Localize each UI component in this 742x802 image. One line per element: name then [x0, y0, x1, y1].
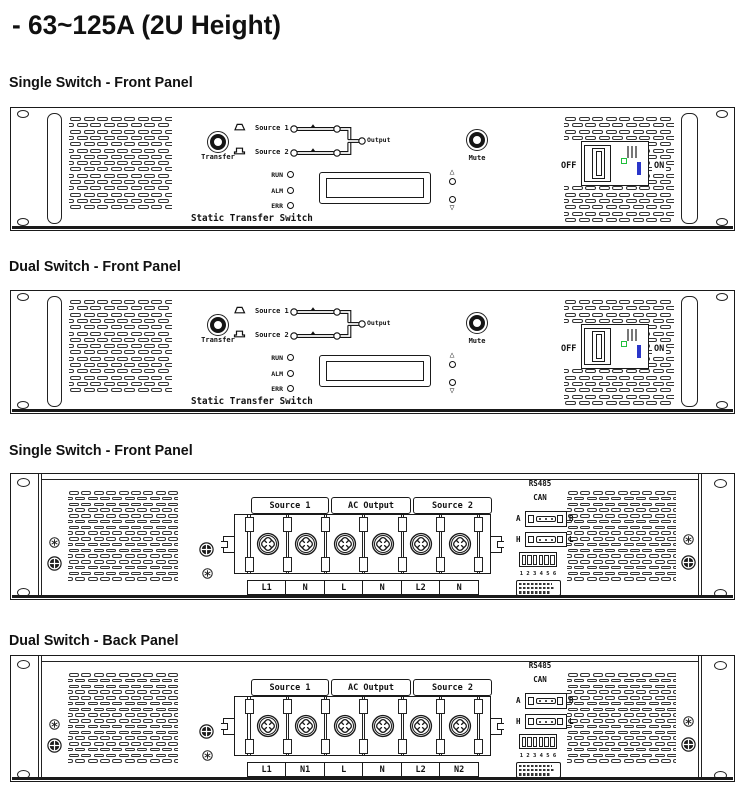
vent-brick: [165, 300, 173, 304]
vent-brick: [568, 685, 578, 689]
vent-brick: [117, 199, 128, 203]
vent-brick: [81, 514, 91, 518]
vent-brick: [649, 497, 659, 501]
vent-brick: [125, 713, 135, 717]
vent-brick: [100, 577, 110, 581]
vent-brick: [125, 679, 135, 683]
vent-brick: [606, 218, 617, 222]
vent-brick: [567, 679, 572, 683]
vent-brick: [653, 186, 664, 190]
vent-brick: [666, 369, 674, 373]
screw-icon: [202, 568, 213, 579]
vent-brick: [599, 531, 609, 535]
vent-brick: [69, 560, 79, 564]
vent-brick: [81, 708, 91, 712]
vent-brick: [100, 566, 110, 570]
terminal-label: L1: [247, 580, 287, 595]
dip-cell: [539, 555, 544, 565]
vent-brick: [653, 174, 664, 178]
vent-brick: [84, 300, 95, 304]
vent-brick: [77, 382, 88, 386]
vent-brick: [619, 376, 630, 380]
vent-brick: [143, 503, 153, 507]
vent-brick: [151, 205, 162, 209]
vent-brick: [97, 338, 108, 342]
vent-brick: [156, 742, 166, 746]
vent-brick: [68, 725, 73, 729]
vent-brick: [70, 142, 81, 146]
vent-brick: [97, 142, 108, 146]
vent-brick: [605, 560, 615, 564]
vent-brick: [90, 357, 101, 361]
vent-brick: [592, 117, 603, 121]
terminal-clamp: [436, 739, 445, 754]
vent-brick: [564, 306, 569, 310]
vent-brick: [587, 577, 597, 581]
vent-brick: [100, 497, 110, 501]
vent-brick: [655, 491, 665, 495]
vent-brick: [574, 531, 584, 535]
vent-brick: [605, 491, 615, 495]
vent-brick: [112, 736, 122, 740]
vent-brick: [111, 155, 122, 159]
terminal-clamp: [359, 517, 368, 532]
vent-brick: [144, 199, 155, 203]
ventilation-grille-right: [567, 672, 676, 766]
vent-brick: [68, 531, 73, 535]
breaker-green-indicator: [621, 341, 627, 347]
vent-brick: [653, 123, 664, 127]
vent-brick: [125, 725, 135, 729]
vent-brick: [655, 696, 665, 700]
vent-brick: [605, 742, 615, 746]
vent-brick: [606, 300, 617, 304]
vent-brick: [653, 332, 664, 336]
vent-brick: [70, 155, 81, 159]
vent-brick: [75, 702, 85, 706]
vent-brick: [580, 742, 590, 746]
vent-brick: [587, 748, 597, 752]
vent-brick: [138, 300, 149, 304]
vent-brick: [655, 742, 665, 746]
vent-brick: [150, 748, 160, 752]
vent-brick: [158, 344, 169, 348]
vent-brick: [151, 180, 162, 184]
vent-brick: [165, 180, 173, 184]
lcd-display-inner: [326, 178, 424, 198]
vent-brick: [618, 514, 628, 518]
port-h-label: H: [516, 718, 521, 726]
vent-brick: [156, 696, 166, 700]
vent-brick: [667, 731, 676, 735]
dip-numbers-label: 1 2 3 4 5 6: [516, 754, 560, 760]
vent-brick: [599, 497, 609, 501]
vent-brick: [106, 537, 116, 541]
vent-brick: [174, 736, 178, 740]
vent-brick: [639, 306, 650, 310]
vent-brick: [168, 526, 178, 530]
terminal-screw-icon: [448, 714, 472, 738]
vent-brick: [630, 560, 640, 564]
led-run-label: RUN: [259, 172, 283, 179]
terminal-clamp: [245, 517, 254, 532]
vent-brick: [137, 543, 147, 547]
vent-brick: [666, 186, 674, 190]
output-label: Output: [367, 320, 390, 327]
vent-brick: [618, 754, 628, 758]
vent-brick: [667, 754, 676, 758]
vent-brick: [69, 549, 79, 553]
vent-brick: [611, 508, 621, 512]
vent-brick: [138, 363, 149, 367]
vent-brick: [624, 748, 634, 752]
vent-brick: [144, 382, 155, 386]
vent-brick: [70, 350, 81, 354]
vent-brick: [168, 503, 178, 507]
vent-brick: [655, 754, 665, 758]
vent-brick: [131, 186, 142, 190]
scroll-down-button: [449, 379, 456, 386]
vent-brick: [564, 136, 569, 140]
down-arrow-icon: ▽: [445, 204, 459, 212]
vent-brick: [605, 685, 615, 689]
vent-brick: [593, 731, 603, 735]
vent-brick: [618, 708, 628, 712]
vent-brick: [660, 193, 671, 197]
vent-brick: [661, 748, 671, 752]
vent-brick: [162, 508, 172, 512]
vent-brick: [592, 300, 603, 304]
vent-brick: [599, 690, 609, 694]
vent-brick: [599, 759, 609, 763]
terminal-header-ac-output: AC Output: [331, 497, 411, 514]
vent-brick: [633, 117, 644, 121]
vent-brick: [592, 130, 603, 134]
vent-brick: [666, 136, 674, 140]
vent-brick: [70, 313, 81, 317]
vent-brick: [593, 537, 603, 541]
vent-brick: [568, 491, 578, 495]
vent-brick: [84, 155, 95, 159]
vent-brick: [599, 382, 610, 386]
vent-brick: [143, 526, 153, 530]
vent-brick: [593, 673, 603, 677]
vent-brick: [579, 130, 590, 134]
vent-brick: [119, 526, 129, 530]
vent-brick: [68, 508, 73, 512]
vent-brick: [655, 719, 665, 723]
breaker-green-indicator: [621, 158, 627, 164]
vent-brick: [143, 537, 153, 541]
vent-brick: [69, 673, 79, 677]
vent-brick: [158, 161, 169, 165]
vent-brick: [162, 748, 172, 752]
vent-brick: [81, 696, 91, 700]
vent-brick: [90, 344, 101, 348]
vent-brick: [112, 497, 122, 501]
vent-brick: [673, 566, 676, 570]
vent-brick: [639, 369, 650, 373]
vent-brick: [633, 313, 644, 317]
vent-brick: [144, 123, 155, 127]
vent-brick: [619, 205, 630, 209]
vent-brick: [165, 205, 173, 209]
vent-brick: [649, 725, 659, 729]
vent-brick: [97, 363, 108, 367]
vent-brick: [572, 123, 583, 127]
vent-brick: [151, 388, 162, 392]
vent-brick: [68, 713, 73, 717]
vent-brick: [100, 679, 110, 683]
vent-brick: [636, 759, 646, 763]
vent-brick: [630, 708, 640, 712]
vent-brick: [144, 174, 155, 178]
vent-brick: [592, 376, 603, 380]
vent-brick: [666, 344, 674, 348]
vent-brick: [94, 708, 104, 712]
vent-brick: [564, 123, 569, 127]
vent-brick: [131, 673, 141, 677]
device-label: Static Transfer Switch: [191, 214, 305, 224]
vent-brick: [90, 306, 101, 310]
vent-brick: [68, 577, 73, 581]
vent-brick: [653, 395, 664, 399]
vent-brick: [612, 395, 623, 399]
vent-brick: [162, 543, 172, 547]
vent-brick: [150, 725, 160, 729]
vent-brick: [599, 702, 609, 706]
terminal-clamp: [436, 699, 445, 714]
vent-brick: [111, 325, 122, 329]
ventilation-grille-left: [68, 490, 178, 584]
vent-brick: [673, 497, 676, 501]
vent-brick: [630, 696, 640, 700]
terminal-clamp: [436, 557, 445, 572]
vent-brick: [69, 319, 74, 323]
vent-brick: [168, 708, 178, 712]
vent-brick: [624, 725, 634, 729]
panel-bottom-edge: [12, 595, 733, 599]
vent-brick: [112, 566, 122, 570]
vent-brick: [94, 560, 104, 564]
vent-brick: [642, 742, 652, 746]
terminal-screw-icon: [294, 532, 318, 556]
vent-brick: [655, 731, 665, 735]
vent-brick: [143, 549, 153, 553]
vent-brick: [655, 549, 665, 553]
screw-icon: [681, 555, 696, 570]
vent-brick: [633, 401, 644, 405]
vent-brick: [125, 566, 135, 570]
vent-brick: [97, 325, 108, 329]
vent-brick: [579, 401, 590, 405]
vent-brick: [633, 205, 644, 209]
vent-brick: [611, 531, 621, 535]
can-label: CAN: [519, 676, 561, 684]
vent-brick: [666, 149, 674, 153]
vent-brick: [69, 332, 74, 336]
vent-brick: [137, 497, 147, 501]
vent-brick: [156, 731, 166, 735]
vent-brick: [137, 554, 147, 558]
vent-brick: [81, 526, 91, 530]
vent-brick: [642, 696, 652, 700]
vent-brick: [106, 708, 116, 712]
vent-brick: [673, 554, 676, 558]
terminal-clamp: [359, 699, 368, 714]
vent-brick: [104, 344, 115, 348]
vent-brick: [618, 742, 628, 746]
vent-brick: [624, 679, 634, 683]
vent-brick: [642, 514, 652, 518]
terminal-clamp: [398, 699, 407, 714]
vent-brick: [104, 199, 115, 203]
vent-brick: [68, 566, 73, 570]
vent-brick: [646, 388, 657, 392]
ear-divider-left: [38, 656, 42, 779]
vent-brick: [158, 369, 169, 373]
vent-brick: [97, 155, 108, 159]
vent-brick: [673, 690, 676, 694]
vent-brick: [131, 369, 142, 373]
vent-brick: [68, 702, 73, 706]
vent-brick: [579, 205, 590, 209]
vent-brick: [150, 543, 160, 547]
vent-brick: [649, 577, 659, 581]
vent-brick: [660, 338, 671, 342]
vent-brick: [131, 731, 141, 735]
vent-brick: [611, 725, 621, 729]
vent-brick: [565, 388, 576, 392]
screw-icon: [49, 719, 60, 730]
vent-brick: [131, 708, 141, 712]
vent-brick: [564, 382, 569, 386]
vent-brick: [168, 537, 178, 541]
vent-brick: [580, 685, 590, 689]
vent-brick: [564, 186, 569, 190]
panel-bottom-edge: [12, 409, 733, 413]
vent-brick: [106, 526, 116, 530]
vent-brick: [151, 300, 162, 304]
vent-brick: [649, 531, 659, 535]
vent-brick: [124, 155, 135, 159]
vent-brick: [104, 174, 115, 178]
vent-brick: [587, 520, 597, 524]
vent-brick: [168, 560, 178, 564]
vent-brick: [70, 167, 81, 171]
vent-brick: [599, 566, 609, 570]
vent-brick: [567, 554, 572, 558]
vent-brick: [151, 376, 162, 380]
vent-brick: [125, 520, 135, 524]
transfer-button-ring: [210, 134, 226, 150]
vent-brick: [606, 130, 617, 134]
rs485-label: RS485: [519, 480, 561, 488]
vent-brick: [138, 180, 149, 184]
port-pin-block: [557, 718, 563, 726]
vent-brick: [630, 549, 640, 553]
vent-brick: [661, 531, 671, 535]
vent-brick: [143, 708, 153, 712]
vent-brick: [568, 754, 578, 758]
vent-brick: [619, 401, 630, 405]
vent-brick: [667, 708, 676, 712]
dip-cell: [522, 555, 527, 565]
vent-brick: [174, 577, 178, 581]
front-panel-single: Transfer Source 1 Source 2 Output RUN: [10, 107, 735, 231]
transfer-label: Transfer: [195, 337, 241, 344]
vent-brick: [564, 369, 569, 373]
back-panel-single: Source 1 AC Output Source 2 L1 N L N L2 …: [10, 473, 735, 600]
vent-brick: [125, 577, 135, 581]
source2-label: Source 2: [255, 149, 289, 156]
vent-brick: [106, 491, 116, 495]
vent-brick: [633, 193, 644, 197]
vent-brick: [137, 713, 147, 717]
vent-brick: [84, 325, 95, 329]
vent-brick: [119, 719, 129, 723]
vent-brick: [124, 388, 135, 392]
mute-label: Mute: [462, 155, 492, 162]
vent-brick: [572, 212, 583, 216]
circuit-breaker: [581, 324, 649, 369]
vent-brick: [646, 376, 657, 380]
vent-brick: [81, 731, 91, 735]
ear-divider-left: [38, 474, 42, 597]
vent-brick: [138, 388, 149, 392]
vent-brick: [673, 713, 676, 717]
vent-brick: [624, 566, 634, 570]
vent-brick: [81, 742, 91, 746]
vent-brick: [69, 199, 74, 203]
vent-brick: [655, 673, 665, 677]
vent-brick: [131, 526, 141, 530]
vent-brick: [567, 497, 572, 501]
vent-brick: [599, 123, 610, 127]
vent-brick: [156, 537, 166, 541]
vent-brick: [112, 713, 122, 717]
vent-brick: [119, 731, 129, 735]
terminal-block-notch: [221, 723, 228, 730]
vent-brick: [94, 549, 104, 553]
screw-icon: [47, 556, 62, 571]
vent-brick: [168, 514, 178, 518]
vent-brick: [124, 180, 135, 184]
vent-brick: [75, 759, 85, 763]
vent-brick: [666, 382, 674, 386]
vent-brick: [165, 376, 173, 380]
vent-brick: [75, 577, 85, 581]
vent-brick: [81, 549, 91, 553]
scroll-up-button: [449, 361, 456, 368]
vent-brick: [88, 543, 98, 547]
vent-brick: [77, 123, 88, 127]
vent-brick: [599, 319, 610, 323]
vent-brick: [69, 306, 74, 310]
vent-brick: [68, 554, 73, 558]
vent-brick: [131, 123, 142, 127]
vent-brick: [112, 679, 122, 683]
vent-brick: [646, 117, 657, 121]
vent-brick: [168, 731, 178, 735]
vent-brick: [94, 696, 104, 700]
vent-brick: [593, 696, 603, 700]
terminal-label: L2: [401, 762, 441, 777]
vent-brick: [624, 520, 634, 524]
vent-brick: [69, 514, 79, 518]
vent-brick: [655, 685, 665, 689]
vent-brick: [117, 369, 128, 373]
